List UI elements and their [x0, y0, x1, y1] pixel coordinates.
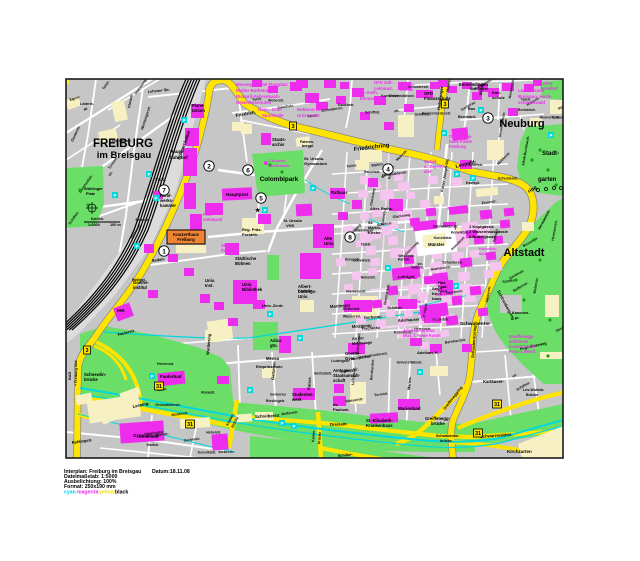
svg-text:Datum:18.11.08: Datum:18.11.08 — [152, 469, 190, 475]
svg-text:Paulusk.: Paulusk. — [333, 407, 349, 412]
svg-text:Gem.- Graf-: Gem.- Graf- — [258, 107, 283, 112]
svg-text:P: P — [455, 172, 458, 177]
svg-text:Colombipark: Colombipark — [260, 176, 299, 183]
svg-text:Lederle-: Lederle- — [80, 102, 95, 106]
svg-text:yellow: yellow — [99, 490, 116, 496]
svg-text:P: P — [280, 421, 283, 426]
svg-text:P: P — [479, 108, 482, 113]
svg-text:P: P — [418, 370, 421, 375]
svg-text:Konviktstr.: Konviktstr. — [451, 230, 470, 234]
svg-text:Wasserstr.: Wasserstr. — [343, 314, 361, 318]
svg-text:Altstadt: Altstadt — [504, 247, 545, 259]
svg-text:Rosastr.: Rosastr. — [201, 391, 215, 395]
svg-text:Gymnasium: Gymnasium — [133, 433, 159, 438]
svg-text:Synagoge: Synagoge — [447, 206, 469, 211]
svg-text:Talstr.: Talstr. — [361, 242, 371, 246]
svg-text:3: 3 — [291, 124, 294, 130]
svg-text:3 Buttergasse: 3 Buttergasse — [469, 234, 496, 239]
svg-text:31: 31 — [187, 422, 193, 428]
svg-text:Gymnasium: Gymnasium — [304, 161, 327, 166]
svg-text:Les-Wohleb-: Les-Wohleb- — [523, 388, 545, 392]
svg-text:P: P — [454, 284, 457, 289]
svg-text:Bertoldstr.: Bertoldstr. — [518, 108, 536, 112]
svg-text:Schiffstr.: Schiffstr. — [365, 111, 380, 115]
svg-text:str.: str. — [417, 262, 422, 266]
svg-text:amt: amt — [424, 169, 432, 174]
svg-text:Gauchstr.: Gauchstr. — [338, 103, 355, 107]
svg-text:Universitätsstr.: Universitätsstr. — [389, 94, 415, 98]
svg-text:Gewerbeschulen: Gewerbeschulen — [236, 100, 271, 105]
svg-text:VHS: VHS — [286, 223, 295, 228]
svg-text:gericht: gericht — [402, 304, 417, 309]
svg-text:schule: schule — [492, 95, 505, 100]
svg-text:brücke: brücke — [440, 439, 452, 443]
svg-text:pl.: pl. — [515, 316, 519, 320]
svg-text:schlössele: schlössele — [269, 163, 290, 168]
svg-text:P: P — [182, 118, 185, 123]
svg-text:P: P — [248, 388, 251, 393]
svg-text:Erbprinzenstr.: Erbprinzenstr. — [256, 364, 283, 369]
svg-text:3: 3 — [85, 348, 88, 354]
svg-text:Gauchstr.: Gauchstr. — [364, 170, 381, 174]
svg-text:cyan: cyan — [64, 490, 76, 496]
svg-text:TAXI: TAXI — [155, 177, 166, 183]
svg-text:P: P — [298, 336, 301, 341]
svg-text:Rektorat der: Rektorat der — [297, 107, 323, 112]
svg-text:Dreisam-: Dreisam- — [330, 421, 349, 427]
svg-text:meldeamt: meldeamt — [203, 217, 223, 222]
svg-text:+ Freiburg Süd: + Freiburg Süd — [74, 361, 78, 386]
svg-text:Gym.: Gym. — [345, 356, 355, 361]
svg-text:brücke: brücke — [84, 377, 98, 382]
svg-text:Bibliothek: Bibliothek — [242, 287, 263, 292]
svg-text:Kathstr.: Kathstr. — [91, 217, 104, 221]
svg-text:Inst.: Inst. — [205, 283, 214, 288]
svg-text:Gerberau: Gerberau — [270, 393, 286, 397]
svg-text:im Breisgau: im Breisgau — [97, 150, 152, 161]
svg-text:P: P — [150, 374, 153, 379]
svg-text:Weberstr.: Weberstr. — [218, 450, 234, 454]
svg-text:Friedhof: Friedhof — [541, 86, 558, 91]
svg-text:Konviktstr.: Konviktstr. — [434, 236, 453, 240]
svg-text:FREIBURG: FREIBURG — [93, 138, 153, 150]
svg-text:ev.-meth.: ev.-meth. — [360, 90, 378, 95]
svg-text:black: black — [115, 490, 128, 496]
svg-text:P: P — [292, 424, 295, 429]
svg-text:museum: museum — [422, 316, 439, 321]
svg-text:Altes Raths.: Altes Raths. — [370, 206, 393, 211]
svg-text:Rieslingstr.: Rieslingstr. — [266, 399, 285, 403]
svg-text:Karlspl.: Karlspl. — [466, 181, 480, 185]
svg-text:Stadtbibl.: Stadtbibl. — [414, 225, 432, 230]
svg-text:Freiburg: Freiburg — [449, 144, 466, 149]
svg-text:★: ★ — [255, 207, 261, 214]
svg-text:P: P — [549, 133, 552, 138]
svg-text:Forstdir.: Forstdir. — [242, 232, 258, 237]
svg-text:haus: haus — [436, 292, 446, 297]
svg-text:31: 31 — [156, 384, 162, 390]
svg-text:Kirche: Kirche — [368, 230, 381, 235]
svg-text:Grünwälderstr.: Grünwälderstr. — [155, 403, 180, 407]
svg-text:Hauptpost: Hauptpost — [226, 192, 249, 197]
svg-text:1:6000: 1:6000 — [88, 223, 100, 227]
svg-text:garten: garten — [538, 177, 557, 183]
svg-text:31: 31 — [494, 402, 500, 408]
svg-text:4: 4 — [386, 166, 390, 173]
svg-text:Hebelstr.: Hebelstr. — [206, 431, 221, 435]
svg-text:kammer: kammer — [160, 203, 176, 208]
svg-text:5: 5 — [259, 195, 263, 202]
svg-text:Kirchzarten: Kirchzarten — [507, 449, 532, 454]
svg-text:Universität: Universität — [297, 113, 320, 118]
svg-text:31: 31 — [475, 431, 481, 437]
svg-text:Konviktstr.: Konviktstr. — [353, 258, 372, 262]
svg-text:P: P — [311, 186, 314, 191]
svg-text:Niemensstr.: Niemensstr. — [346, 290, 366, 294]
svg-text:Stühlinger: Stühlinger — [84, 187, 103, 191]
svg-text:2: 2 — [207, 163, 211, 170]
svg-text:Walter-Rathenau- u.: Walter-Rathenau- u. — [236, 88, 277, 93]
svg-text:Grünwälderstr.: Grünwälderstr. — [433, 224, 458, 228]
svg-text:3: 3 — [443, 102, 446, 108]
svg-text:Salzstr.: Salzstr. — [411, 266, 424, 270]
svg-text:Univ.-Zentr.: Univ.-Zentr. — [262, 303, 284, 308]
svg-text:P: P — [386, 266, 389, 271]
svg-text:Platz: Platz — [86, 192, 95, 196]
svg-text:schwarzwald: schwarzwald — [518, 100, 545, 105]
svg-text:Adelhan. K.: Adelhan. K. — [417, 350, 439, 355]
svg-text:bergpl.: bergpl. — [302, 144, 314, 148]
svg-text:Hebelstr.: Hebelstr. — [361, 275, 376, 279]
svg-text:Richard-Fehrenbach-: Richard-Fehrenbach- — [236, 94, 281, 99]
svg-text:Kartäuser-: Kartäuser- — [483, 379, 505, 384]
svg-text:Universitätsstr.: Universitätsstr. — [397, 361, 423, 365]
svg-text:IHK: IHK — [117, 308, 126, 313]
svg-text:P: P — [113, 193, 116, 198]
svg-text:Bernhard-: Bernhard- — [458, 115, 477, 119]
svg-text:magenta: magenta — [77, 490, 98, 496]
svg-text:Landger.: Landger. — [398, 272, 415, 277]
svg-text:Stadt-: Stadt- — [542, 151, 559, 157]
svg-text:Deutschordenstr.: Deutschordenstr. — [422, 111, 452, 115]
svg-text:OFD Zoll-: OFD Zoll- — [374, 80, 393, 85]
svg-text:Bus: Bus — [468, 107, 475, 111]
svg-text:Bertoldstr.: Bertoldstr. — [314, 372, 332, 376]
svg-text:str.: str. — [394, 109, 400, 114]
svg-text:Emmausk.: Emmausk. — [360, 96, 381, 101]
svg-text:Karlstr.: Karlstr. — [398, 257, 410, 261]
svg-text:Faulerbad: Faulerbad — [160, 374, 182, 379]
svg-text:Krankenhaus: Krankenhaus — [366, 423, 393, 428]
svg-text:Breisgau- Hoch-: Breisgau- Hoch- — [518, 94, 552, 99]
svg-text:1: 1 — [162, 248, 166, 255]
svg-text:Kapelle: Kapelle — [298, 288, 313, 293]
svg-text:schule: schule — [400, 87, 414, 92]
svg-text:Mus. f. Neue Kunst: Mus. f. Neue Kunst — [403, 333, 441, 338]
svg-text:P: P — [263, 208, 266, 213]
svg-text:BAD: BAD — [68, 372, 72, 380]
svg-text:brücke: brücke — [431, 421, 445, 426]
svg-text:Messegelände/ Flugplatz: Messegelände/ Flugplatz — [236, 82, 289, 87]
svg-text:P: P — [471, 176, 474, 181]
svg-text:Rathaus: Rathaus — [331, 190, 348, 195]
svg-text:P: P — [442, 131, 445, 136]
svg-text:P: P — [154, 196, 157, 201]
svg-text:institut: institut — [133, 285, 148, 290]
svg-text:P: P — [135, 244, 138, 249]
svg-text:kirche: kirche — [479, 251, 492, 256]
svg-text:Münster: Münster — [428, 242, 445, 247]
svg-text:6: 6 — [246, 167, 250, 174]
svg-text:tarium: tarium — [192, 108, 205, 113]
svg-text:P: P — [268, 312, 271, 317]
svg-text:Emmendingen: Emmendingen — [459, 82, 488, 87]
svg-text:3: 3 — [486, 115, 490, 122]
svg-text:Eisenstr.: Eisenstr. — [136, 218, 151, 222]
svg-text:Wallstr.: Wallstr. — [147, 443, 160, 447]
svg-text:gtn.: gtn. — [270, 343, 278, 348]
svg-text:Konviktstr.: Konviktstr. — [198, 450, 217, 454]
svg-text:7: 7 — [162, 187, 166, 194]
svg-text:werk: werk — [291, 397, 302, 402]
svg-text:Sporthalle: Sporthalle — [262, 113, 284, 118]
svg-text:pl.: pl. — [84, 107, 88, 111]
svg-text:100 m: 100 m — [110, 223, 121, 227]
svg-text:Brücke: Brücke — [526, 393, 538, 397]
svg-text:Schusterstr.: Schusterstr. — [498, 176, 519, 180]
svg-text:schaft: schaft — [333, 378, 346, 383]
svg-text:Kanonen-: Kanonen- — [512, 311, 530, 315]
svg-text:Schiffstr.: Schiffstr. — [387, 306, 402, 310]
svg-text:archiv: archiv — [272, 142, 285, 147]
svg-text:Neuburg: Neuburg — [499, 118, 544, 130]
svg-text:Univ.: Univ. — [324, 241, 334, 246]
svg-text:8: 8 — [348, 234, 352, 241]
svg-text:Bühnen: Bühnen — [235, 261, 251, 266]
svg-text:Freiburg: Freiburg — [177, 237, 195, 242]
svg-text:Marienbad: Marienbad — [398, 406, 421, 411]
svg-text:Herrenstr.: Herrenstr. — [157, 362, 174, 366]
svg-text:Frau u. Beruf: Frau u. Beruf — [509, 349, 536, 354]
svg-text:Univ.: Univ. — [298, 294, 308, 299]
svg-text:theater: theater — [221, 248, 235, 253]
svg-text:Schusterstr.: Schusterstr. — [442, 261, 463, 265]
svg-text:Schwabentor-: Schwabentor- — [436, 434, 461, 438]
svg-text:P: P — [147, 172, 150, 177]
svg-text:Mensa: Mensa — [266, 356, 280, 361]
